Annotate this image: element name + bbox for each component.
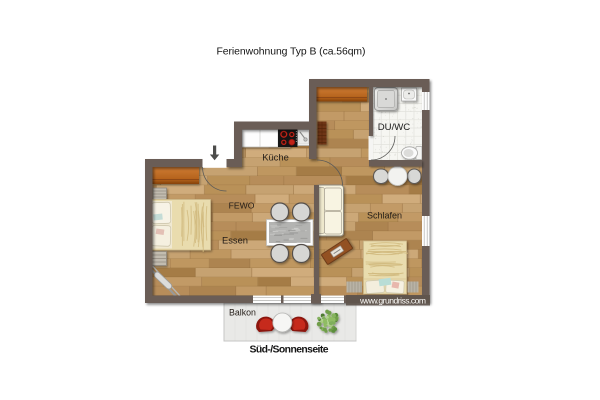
- svg-text:Balkon: Balkon: [229, 308, 256, 318]
- svg-text:Schlafen: Schlafen: [367, 211, 402, 221]
- svg-text:DU/WC: DU/WC: [378, 122, 411, 133]
- svg-text:Ferienwohnung Typ B (ca.56qm): Ferienwohnung Typ B (ca.56qm): [217, 47, 366, 58]
- svg-text:FEWO: FEWO: [229, 201, 255, 211]
- svg-text:Süd-/Sonnenseite: Süd-/Sonnenseite: [250, 345, 329, 356]
- svg-text:Küche: Küche: [262, 152, 289, 163]
- svg-text:www.grundriss.com: www.grundriss.com: [359, 295, 426, 305]
- svg-text:Essen: Essen: [222, 235, 248, 246]
